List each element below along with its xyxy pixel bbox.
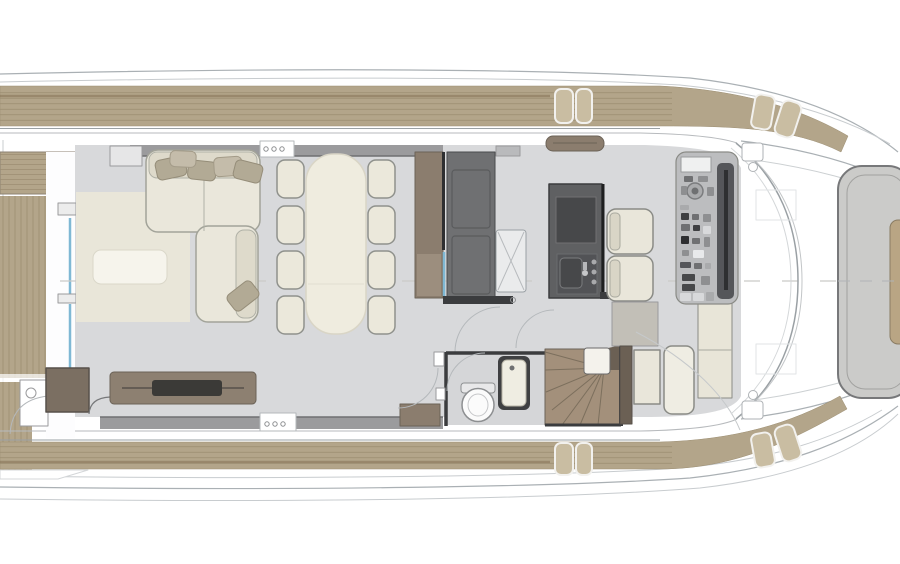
console-buttons-17	[680, 262, 691, 268]
glass-jamb-mid	[58, 294, 76, 303]
console-buttons-3	[681, 186, 687, 195]
cab-cream-2	[664, 346, 694, 414]
stairs	[545, 345, 621, 426]
dining-chair-8	[368, 296, 395, 334]
console-buttons-15	[682, 250, 689, 256]
console-buttons-11	[703, 226, 711, 234]
sink-knob-3	[592, 280, 597, 285]
cab-grey-top	[612, 302, 658, 346]
bow-hatch-top	[742, 143, 763, 161]
console-buttons-4	[707, 187, 714, 196]
side-step-bottom-1	[555, 443, 573, 475]
console-buttons-23	[680, 293, 691, 301]
console-buttons-13	[692, 238, 700, 244]
console-buttons-2	[698, 176, 708, 182]
bow-cleat-bottom	[749, 391, 758, 400]
sofa-pillow-5	[170, 150, 197, 167]
island-sink-bowl	[560, 258, 582, 288]
side-step-top-2	[576, 89, 592, 123]
deck-locker-portside	[110, 146, 142, 166]
console-buttons-20	[682, 274, 695, 281]
island-cooktop	[556, 197, 596, 243]
console-buttons-24	[693, 293, 704, 301]
sink-knob-2	[592, 270, 597, 275]
toilet-bowl	[462, 389, 494, 422]
helm-seat-1-back	[610, 213, 620, 250]
console-buttons-6	[681, 213, 689, 220]
dining-table	[306, 154, 366, 334]
head-jamb-1	[434, 352, 444, 366]
port-door-sill-top	[260, 141, 294, 157]
console-buttons-9	[681, 224, 690, 231]
yacht-main-deck-plan	[0, 0, 900, 564]
console-buttons-14	[704, 237, 710, 247]
console-buttons-25	[706, 292, 714, 301]
galley-tall-unit	[447, 152, 495, 302]
helm-wheel-hub	[692, 188, 699, 195]
console-buttons-7	[692, 214, 699, 220]
helm-strip-line	[724, 170, 728, 290]
dining-chair-5	[368, 160, 395, 198]
sink-faucet-stem	[583, 262, 587, 270]
floor-plan-page	[0, 0, 900, 564]
cab-cream-1	[634, 350, 660, 404]
dining-chair-4	[277, 296, 304, 334]
helm-screen	[681, 157, 711, 172]
console-buttons-12	[681, 236, 689, 244]
bow-sunpad-cushion	[890, 220, 900, 344]
console-buttons-21	[682, 284, 695, 291]
side-step-bottom-2	[576, 443, 592, 475]
console-buttons-10	[693, 225, 700, 231]
side-step-top-1	[555, 89, 573, 123]
console-buttons-18	[694, 263, 702, 269]
stairs-landing	[584, 348, 610, 374]
helm	[676, 152, 738, 304]
tv-screen	[152, 380, 222, 396]
bow-cleat-top	[749, 163, 758, 172]
console-base	[698, 300, 732, 398]
helm-seat-2-back	[610, 260, 620, 297]
vanity-faucet	[510, 366, 515, 371]
wall-unit-lower	[417, 254, 441, 296]
galley-bottom-bar	[443, 296, 513, 304]
coffee-table	[93, 250, 167, 284]
dining-chair-7	[368, 251, 395, 289]
galley-wall-stub	[496, 146, 520, 156]
dining-chair-2	[277, 206, 304, 244]
console-buttons-8	[703, 214, 711, 222]
dining-chair-1	[277, 160, 304, 198]
console-buttons-16	[693, 250, 704, 258]
aft-cabinet-white	[20, 380, 48, 426]
dining-chair-6	[368, 206, 395, 244]
sink-knob-1	[592, 260, 597, 265]
console-buttons-22	[701, 276, 710, 285]
head-jamb-2	[436, 388, 445, 400]
console-buttons-1	[684, 176, 693, 182]
cab-dark-wedge	[620, 346, 632, 424]
console-buttons-19	[705, 263, 711, 269]
console-buttons-5	[680, 205, 689, 210]
salon-corner-cabinet	[46, 368, 89, 412]
sink-faucet	[582, 270, 588, 276]
dining-chair-3	[277, 251, 304, 289]
bow-hatch-bottom	[742, 401, 763, 419]
glass-jamb-top	[58, 203, 76, 215]
